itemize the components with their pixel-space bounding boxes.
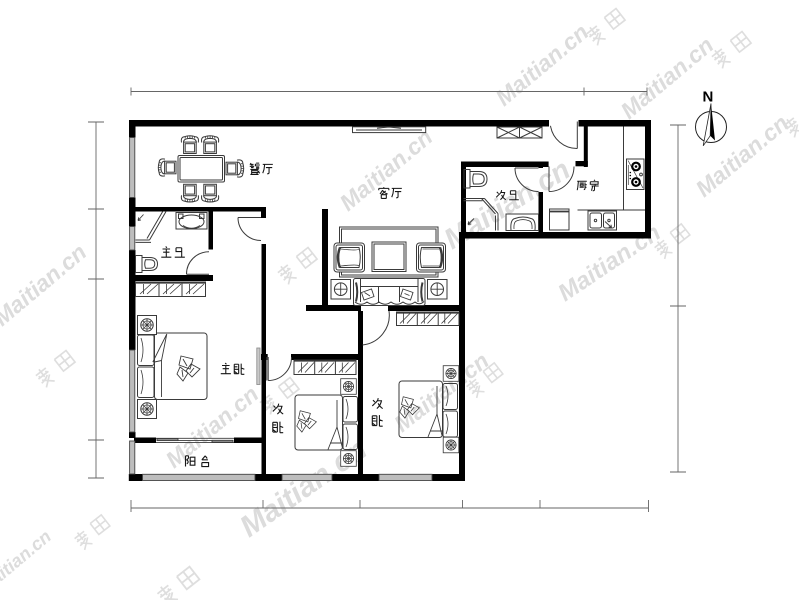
svg-text:N: N bbox=[703, 89, 714, 106]
